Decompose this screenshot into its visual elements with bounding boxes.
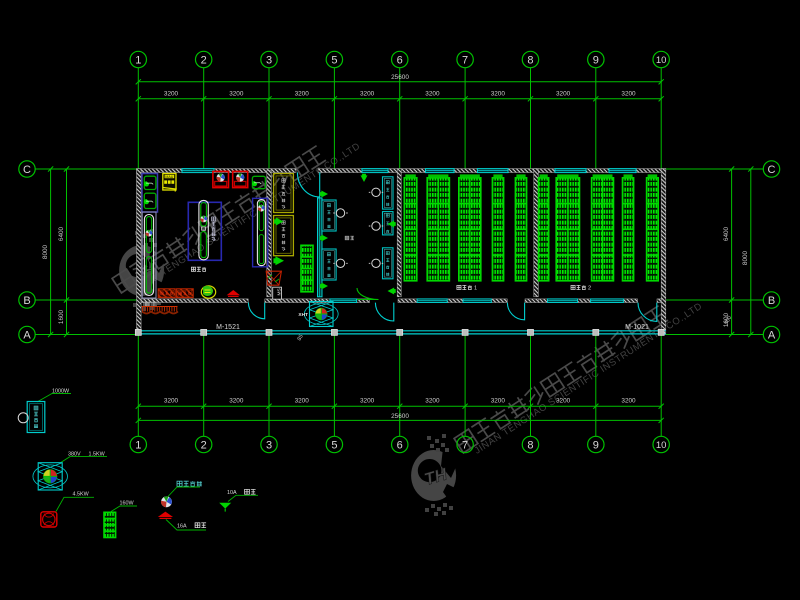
svg-text:6: 6: [397, 439, 403, 451]
svg-text:3200: 3200: [425, 90, 440, 97]
svg-text:5: 5: [331, 439, 337, 451]
svg-text:A: A: [768, 329, 776, 341]
svg-text:25600: 25600: [391, 74, 409, 81]
svg-text:3200: 3200: [229, 90, 244, 97]
svg-text:1: 1: [135, 439, 141, 451]
svg-text:B: B: [768, 295, 775, 307]
svg-text:9: 9: [593, 54, 599, 66]
svg-text:6: 6: [397, 54, 403, 66]
svg-text:4.5KW: 4.5KW: [73, 491, 90, 497]
svg-text:3200: 3200: [556, 398, 571, 405]
svg-text:7: 7: [462, 54, 468, 66]
svg-text:MAU: MAU: [165, 175, 173, 179]
svg-text:M-1521: M-1521: [216, 324, 240, 331]
svg-text:10: 10: [656, 55, 667, 66]
svg-text:C: C: [23, 164, 31, 176]
svg-text:7: 7: [462, 439, 468, 451]
svg-text:5: 5: [331, 54, 337, 66]
svg-text:8: 8: [527, 54, 533, 66]
svg-text:8000: 8000: [742, 250, 749, 265]
svg-text:3: 3: [266, 439, 272, 451]
svg-text:3200: 3200: [360, 398, 375, 405]
svg-text:B: B: [23, 295, 30, 307]
svg-text:6400: 6400: [723, 226, 730, 241]
svg-text:8: 8: [527, 439, 533, 451]
svg-text:1600: 1600: [58, 309, 65, 324]
svg-text:3200: 3200: [621, 90, 636, 97]
svg-text:3200: 3200: [491, 398, 506, 405]
svg-text:25600: 25600: [391, 413, 409, 420]
svg-text:10: 10: [656, 440, 667, 451]
svg-text:3200: 3200: [229, 398, 244, 405]
svg-text:2: 2: [588, 286, 591, 292]
svg-text:3: 3: [266, 54, 272, 66]
svg-text:3200: 3200: [491, 90, 506, 97]
svg-text:16A: 16A: [177, 524, 187, 530]
svg-text:3200: 3200: [164, 398, 179, 405]
svg-text:2: 2: [201, 439, 207, 451]
svg-text:3200: 3200: [425, 398, 440, 405]
svg-text:3200: 3200: [360, 90, 375, 97]
svg-text:3200: 3200: [295, 398, 310, 405]
svg-text:M-1021: M-1021: [625, 324, 649, 331]
svg-text:1: 1: [474, 286, 477, 292]
svg-text:MS: MS: [277, 288, 283, 295]
svg-text:3200: 3200: [164, 90, 179, 97]
svg-text:8000: 8000: [42, 244, 49, 259]
svg-text:C: C: [768, 164, 776, 176]
svg-text:||||||||| |||||||: ||||||||| |||||||: [143, 301, 157, 306]
svg-text:6400: 6400: [58, 226, 65, 241]
svg-text:1: 1: [135, 54, 141, 66]
svg-text:9: 9: [593, 439, 599, 451]
svg-text:3200: 3200: [295, 90, 310, 97]
svg-text:XHT: XHT: [298, 312, 308, 318]
svg-text:3200: 3200: [556, 90, 571, 97]
svg-text:3200: 3200: [621, 398, 636, 405]
svg-text:2: 2: [201, 54, 207, 66]
svg-text:A: A: [23, 329, 31, 341]
